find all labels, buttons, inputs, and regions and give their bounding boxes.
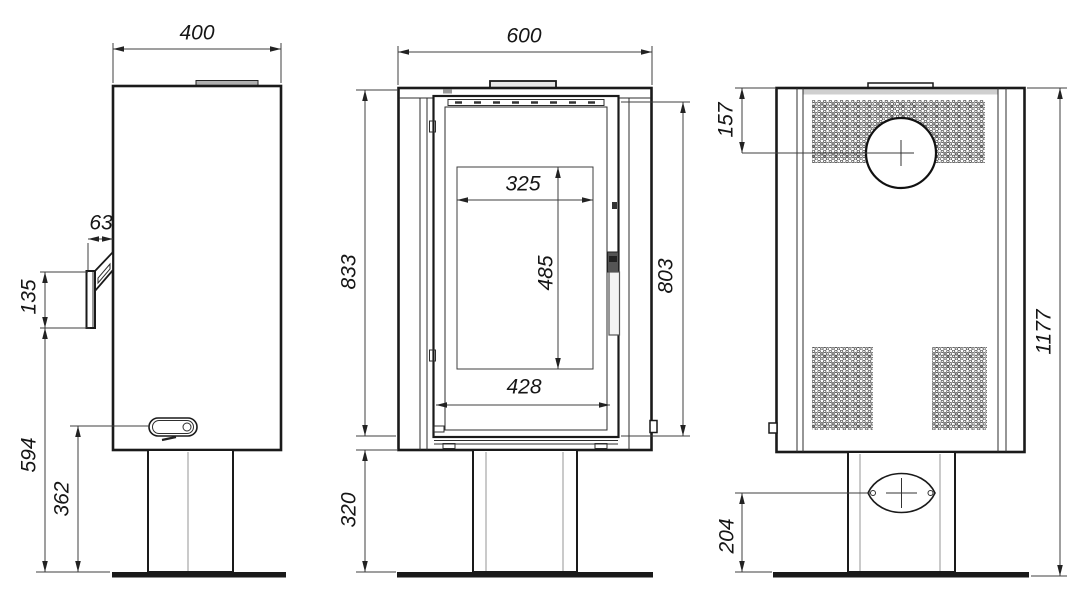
stove-dimension-drawing: 400 63 135 594 362 (0, 0, 1086, 605)
dim-total-height: 1177 (1027, 88, 1067, 576)
side-door-handle (87, 252, 114, 328)
dim-label-803: 803 (655, 258, 678, 293)
rear-top-strip (803, 90, 998, 95)
rear-base-plate (773, 572, 1029, 578)
dim-label-325: 325 (505, 173, 540, 196)
dim-handle-bottom-from-floor: 594 (18, 328, 111, 572)
dim-side-top-width: 400 (113, 22, 281, 84)
handle-plate (87, 271, 96, 328)
dim-label-362: 362 (51, 481, 74, 516)
dim-handle-height: 135 (18, 272, 91, 328)
door-handle-front (609, 272, 620, 335)
dim-label-63: 63 (89, 212, 113, 235)
front-pedestal (473, 450, 577, 572)
dim-pedestal-height: 320 (338, 450, 398, 572)
perforation-patch-right (932, 347, 987, 430)
front-view (397, 81, 657, 578)
front-base-plate (397, 572, 653, 578)
door-edge-detail (612, 202, 617, 209)
dim-label-400: 400 (179, 22, 214, 45)
dim-label-594: 594 (18, 437, 41, 472)
side-bracket-front (650, 421, 657, 433)
dim-label-157: 157 (715, 101, 738, 137)
perforation-patch-left (812, 347, 873, 430)
dim-label-833: 833 (338, 254, 361, 289)
side-view (87, 81, 287, 578)
dim-label-320: 320 (338, 492, 361, 527)
dim-label-428: 428 (506, 376, 541, 399)
dim-label-1177: 1177 (1033, 308, 1056, 354)
dim-body-height: 833 (338, 90, 399, 436)
dim-front-top-width: 600 (398, 25, 652, 86)
technical-drawing-page: 400 63 135 594 362 (0, 0, 1086, 605)
side-body (113, 86, 281, 450)
side-base-plate (112, 572, 286, 578)
door-latch-detail (609, 256, 617, 262)
top-vent-detail (443, 90, 452, 94)
dim-label-204: 204 (716, 518, 739, 554)
dim-inlet-center-from-floor: 204 (716, 493, 871, 572)
side-pedestal (148, 450, 233, 572)
dim-label-135: 135 (18, 279, 41, 314)
rear-view (769, 83, 1029, 578)
dim-label-600: 600 (506, 25, 541, 48)
rear-side-tab (769, 423, 777, 433)
dim-label-485: 485 (535, 255, 558, 290)
